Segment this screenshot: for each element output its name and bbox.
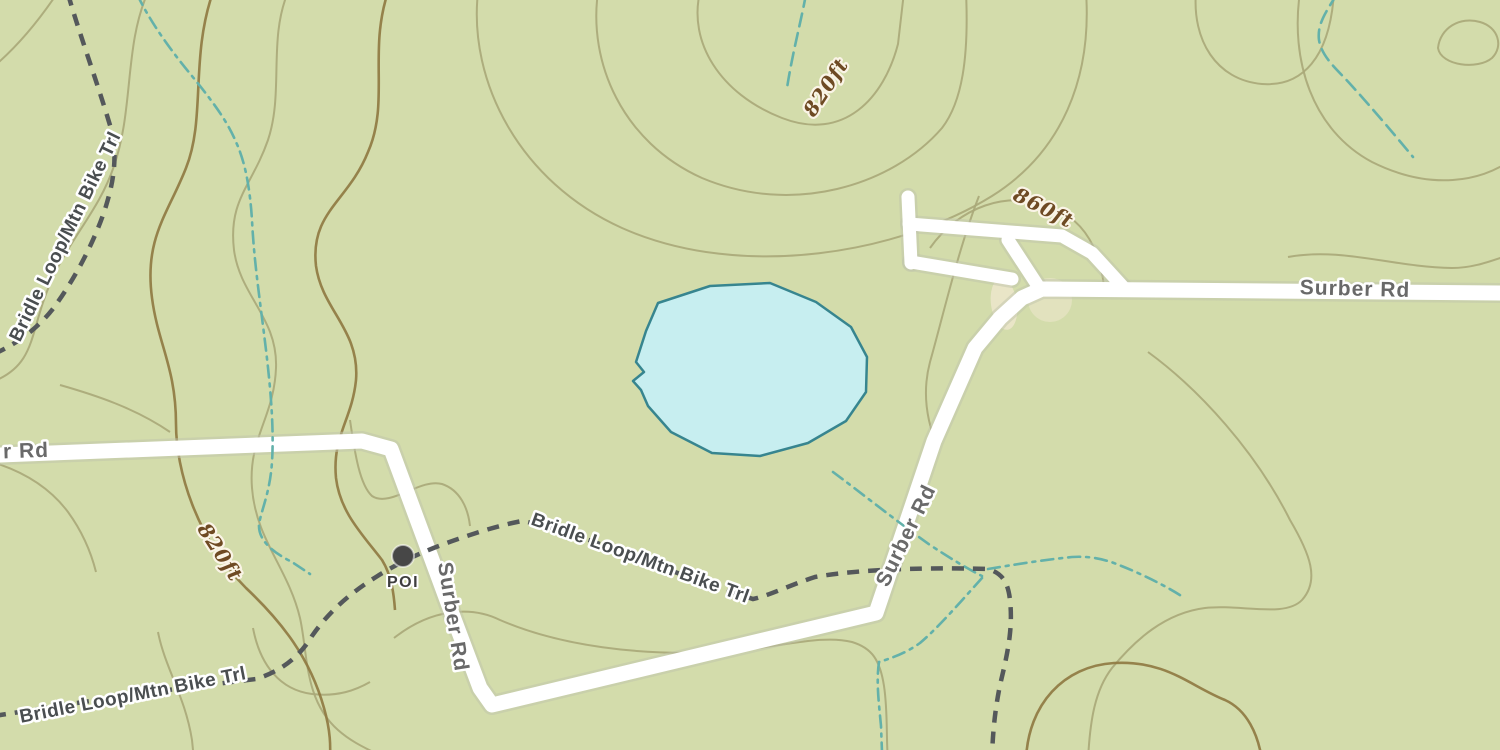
- road-label-surber-rd-east: Surber Rd: [1299, 276, 1410, 302]
- poi-marker[interactable]: [392, 545, 414, 567]
- map-svg[interactable]: Surber Rdr RdSurber RdSurber RdBridle Lo…: [0, 0, 1500, 750]
- topo-map-canvas[interactable]: Surber Rdr RdSurber RdSurber RdBridle Lo…: [0, 0, 1500, 750]
- road-label-surber-rd-west-partial: r Rd: [3, 439, 50, 464]
- poi-label: POI: [387, 574, 419, 591]
